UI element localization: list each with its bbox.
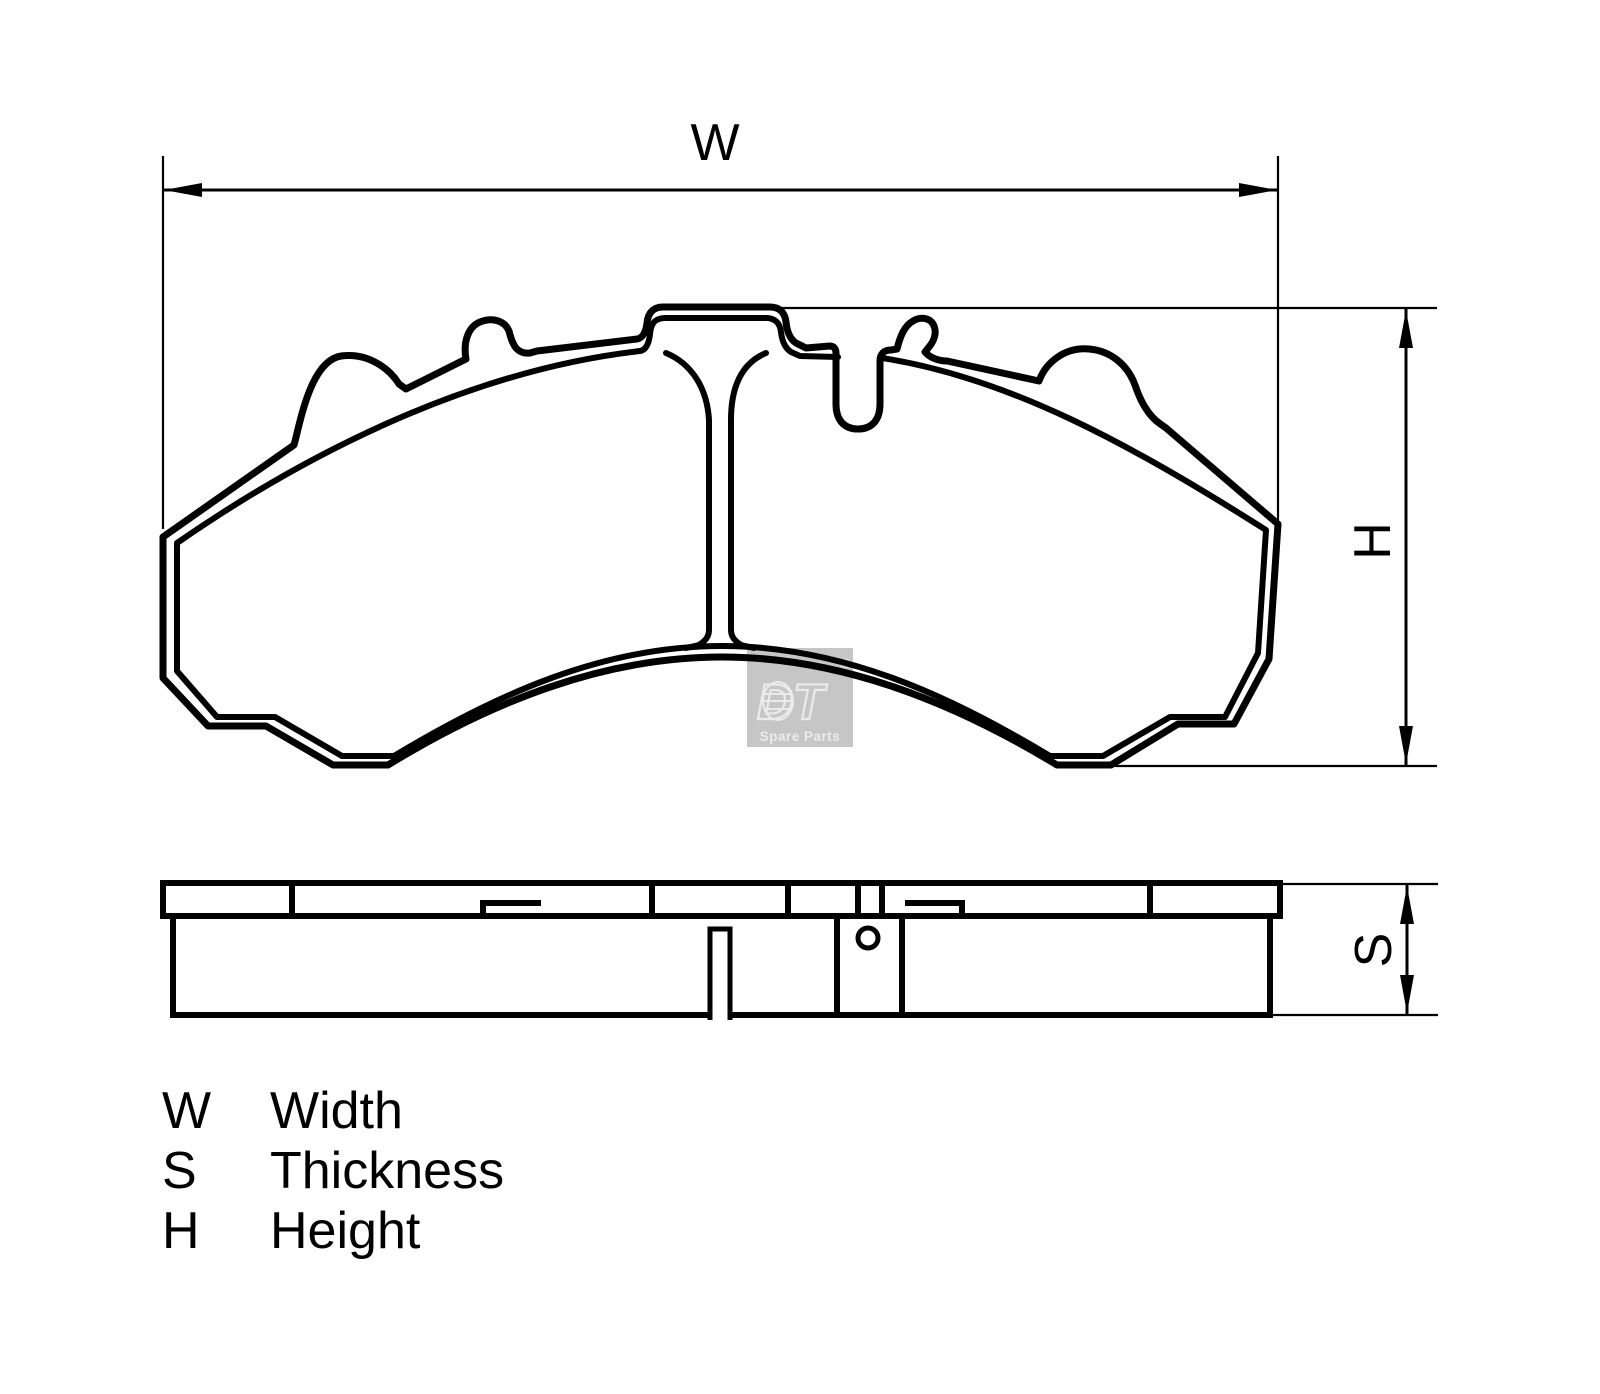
arrowhead-s-bottom-icon xyxy=(1400,975,1414,1013)
friction-dividers xyxy=(837,916,902,1015)
backing-plate-dividers xyxy=(292,883,1150,916)
legend-label-height: Height xyxy=(270,1202,421,1260)
pad-outer-outline xyxy=(163,307,1278,765)
dim-label-s: S xyxy=(1345,933,1403,968)
backing-plate-strip xyxy=(163,883,1280,916)
legend-symbol-s: S xyxy=(162,1142,197,1200)
arrowhead-s-top-icon xyxy=(1400,886,1414,924)
dimension-h: H xyxy=(1344,308,1413,766)
friction-slot xyxy=(710,929,730,1020)
technical-drawing-page: DT ® Spare Parts xyxy=(0,0,1600,1394)
legend-label-thickness: Thickness xyxy=(270,1142,504,1200)
pad-center-slot xyxy=(666,353,766,648)
dimension-w: W xyxy=(163,114,1278,197)
watermark-subtitle: Spare Parts xyxy=(760,729,841,744)
slot-gap-mask xyxy=(712,1010,728,1022)
brake-pad-dimension-drawing: DT ® Spare Parts xyxy=(0,0,1600,1394)
dim-label-h: H xyxy=(1344,522,1402,560)
brake-pad-front-view xyxy=(163,307,1278,765)
rivet-hole-icon xyxy=(858,928,878,948)
legend-symbol-h: H xyxy=(162,1202,200,1260)
legend-label-width: Width xyxy=(270,1082,403,1140)
arrowhead-w-right-icon xyxy=(1239,183,1277,197)
pad-inner-outline xyxy=(177,318,1266,756)
legend-symbol-w: W xyxy=(162,1082,211,1140)
dim-label-w: W xyxy=(690,114,739,172)
arrowhead-h-top-icon xyxy=(1399,310,1413,348)
arrowhead-w-left-icon xyxy=(164,183,202,197)
brake-pad-side-view xyxy=(163,883,1280,1022)
dimension-s: S xyxy=(1345,884,1414,1015)
legend: W Width S Thickness H Height xyxy=(162,1082,504,1260)
extension-lines xyxy=(163,156,1438,1015)
arrowhead-h-bottom-icon xyxy=(1399,726,1413,764)
dimension-annotations: W H S xyxy=(163,114,1438,1015)
